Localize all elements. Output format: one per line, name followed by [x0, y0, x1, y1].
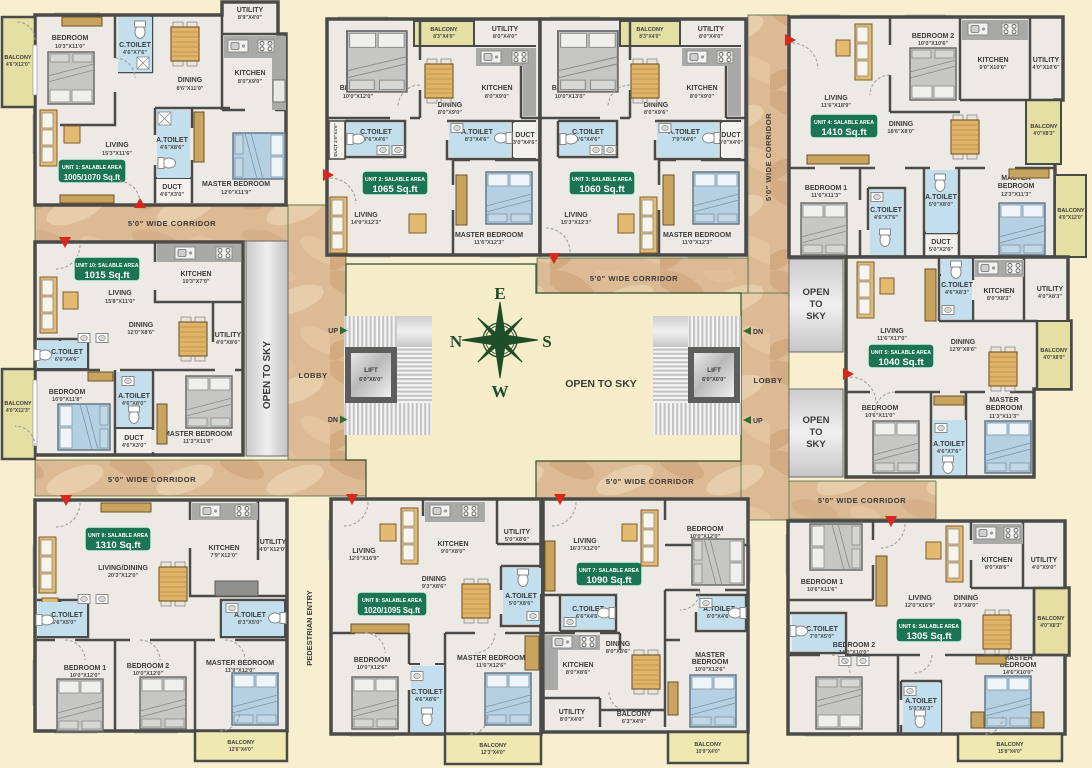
svg-text:DINING: DINING — [129, 322, 154, 329]
svg-text:12'3"X11'3": 12'3"X11'3" — [1001, 192, 1031, 198]
svg-text:DUCT: DUCT — [931, 239, 951, 246]
svg-text:A.TOILET: A.TOILET — [905, 698, 937, 705]
svg-text:LIVING: LIVING — [573, 538, 597, 545]
svg-text:8'3"X5'0": 8'3"X5'0" — [238, 620, 262, 626]
svg-text:4'6"X8'6": 4'6"X8'6" — [415, 697, 439, 703]
svg-text:UNIT 1: SALABLE AREA: UNIT 1: SALABLE AREA — [62, 165, 122, 171]
svg-text:12'3"X4'0": 12'3"X4'0" — [481, 750, 506, 756]
svg-text:4'0"X8'6": 4'0"X8'6" — [216, 340, 240, 346]
svg-text:5'0" WIDE CORRIDOR: 5'0" WIDE CORRIDOR — [818, 496, 906, 505]
svg-text:11'6"X11'3": 11'6"X11'3" — [811, 193, 841, 199]
svg-text:14'0"X10'0": 14'0"X10'0" — [839, 650, 870, 656]
svg-text:11'6"X18'9": 11'6"X18'9" — [821, 103, 851, 109]
svg-text:A.TOILET: A.TOILET — [118, 393, 150, 400]
svg-text:4'0"X12'3": 4'0"X12'3" — [6, 408, 31, 414]
svg-text:5'0" WIDE CORRIDOR: 5'0" WIDE CORRIDOR — [590, 274, 678, 283]
svg-text:MASTER BEDROOM: MASTER BEDROOM — [455, 232, 523, 239]
svg-text:4'0"X12'0": 4'0"X12'0" — [259, 547, 287, 553]
svg-text:UTILITY: UTILITY — [1037, 286, 1064, 293]
svg-text:A.TOILET: A.TOILET — [234, 612, 266, 619]
svg-text:BEDROOM: BEDROOM — [49, 389, 86, 396]
svg-text:4'0"X8'3": 4'0"X8'3" — [1040, 623, 1062, 629]
svg-text:A.TOILET: A.TOILET — [156, 137, 188, 144]
svg-text:BEDROOM: BEDROOM — [998, 183, 1035, 190]
svg-text:BALCONY: BALCONY — [430, 27, 458, 33]
svg-text:LIVING: LIVING — [108, 290, 132, 297]
svg-text:MASTER BEDROOM: MASTER BEDROOM — [206, 660, 274, 667]
svg-text:MASTER: MASTER — [695, 652, 725, 659]
svg-text:8'6"X11'0": 8'6"X11'0" — [177, 86, 204, 92]
svg-text:LIVING: LIVING — [824, 95, 848, 102]
svg-text:4'6"X7'6": 4'6"X7'6" — [123, 50, 147, 56]
svg-text:MASTER: MASTER — [989, 397, 1019, 404]
svg-text:N: N — [450, 332, 463, 351]
svg-text:UTILITY: UTILITY — [1031, 557, 1058, 564]
svg-text:4'6"X12'0": 4'6"X12'0" — [6, 62, 31, 68]
svg-text:C.TOILET: C.TOILET — [806, 626, 838, 633]
svg-text:6'6"X4'6": 6'6"X4'6" — [55, 357, 79, 363]
svg-text:12'0"X11'9": 12'0"X11'9" — [221, 190, 251, 196]
svg-text:1090 Sq.ft: 1090 Sq.ft — [586, 575, 632, 586]
svg-text:UNIT 3: SALABLE AREA: UNIT 3: SALABLE AREA — [572, 177, 632, 183]
svg-text:8'0"X9'0": 8'0"X9'0" — [238, 79, 262, 85]
svg-text:BALCONY: BALCONY — [996, 742, 1024, 748]
svg-text:4'6"X3'0": 4'6"X3'0" — [122, 443, 146, 449]
svg-text:UNIT 8: SALABLE AREA: UNIT 8: SALABLE AREA — [362, 598, 422, 604]
svg-text:LIVING: LIVING — [354, 212, 378, 219]
svg-text:8'0"X9'0": 8'0"X9'0" — [485, 94, 509, 100]
svg-text:DINING: DINING — [606, 641, 631, 648]
svg-text:1305 Sq.ft: 1305 Sq.ft — [906, 631, 952, 642]
svg-text:4'0"X8'3": 4'0"X8'3" — [1033, 131, 1055, 137]
svg-text:BEDROOM 1: BEDROOM 1 — [801, 579, 844, 586]
svg-text:10'0"X12'6": 10'0"X12'6" — [357, 665, 388, 671]
svg-text:OPEN TO SKY: OPEN TO SKY — [565, 378, 637, 390]
svg-text:5'0"X2'6": 5'0"X2'6" — [929, 247, 953, 253]
svg-text:C.TOILET: C.TOILET — [941, 282, 973, 289]
svg-text:12'6"X4'0": 12'6"X4'0" — [229, 747, 254, 753]
svg-text:UNIT 10: SALABLE AREA: UNIT 10: SALABLE AREA — [76, 263, 139, 269]
svg-text:10'0"X11'8": 10'0"X11'8" — [52, 397, 82, 403]
svg-text:UTILITY: UTILITY — [504, 529, 531, 536]
svg-text:6'0"X6'0": 6'0"X6'0" — [359, 377, 383, 383]
svg-text:BALCONY: BALCONY — [617, 711, 652, 718]
svg-text:9'0"X10'6": 9'0"X10'6" — [979, 65, 1007, 71]
svg-text:KITCHEN: KITCHEN — [437, 541, 468, 548]
svg-text:6'6"X5'0": 6'6"X5'0" — [52, 620, 76, 626]
svg-text:1040 Sq.ft: 1040 Sq.ft — [878, 357, 924, 368]
svg-text:UTILITY: UTILITY — [698, 26, 725, 33]
svg-text:4'0"X9'0": 4'0"X9'0" — [1032, 565, 1056, 571]
svg-text:9'3"X8'6": 9'3"X8'6" — [422, 584, 446, 590]
svg-text:5'0"X8'6": 5'0"X8'6" — [505, 537, 529, 543]
svg-text:14'6"X10'0": 14'6"X10'0" — [1003, 670, 1034, 676]
svg-text:10'6"X11'0": 10'6"X11'0" — [865, 413, 895, 419]
svg-text:10'3"X7'0": 10'3"X7'0" — [182, 279, 210, 285]
svg-text:4'6"X8'3": 4'6"X8'3" — [945, 290, 969, 296]
svg-text:10'0"X12'6": 10'0"X12'6" — [695, 667, 726, 673]
svg-text:UTILITY: UTILITY — [492, 26, 519, 33]
svg-text:C.TOILET: C.TOILET — [119, 42, 151, 49]
svg-text:1005/1070 Sq.ft: 1005/1070 Sq.ft — [64, 173, 121, 182]
svg-text:BALCONY: BALCONY — [694, 742, 722, 748]
svg-text:5'0" WIDE CORRIDOR: 5'0" WIDE CORRIDOR — [764, 113, 773, 201]
svg-text:3'0"X4'6": 3'0"X4'6" — [719, 140, 743, 146]
svg-text:4'0"X10'6": 4'0"X10'6" — [1032, 65, 1060, 71]
svg-text:DUCT: DUCT — [721, 132, 741, 139]
svg-text:11'6"X12'3": 11'6"X12'3" — [474, 240, 504, 246]
svg-text:C.TOILET: C.TOILET — [360, 129, 392, 136]
svg-text:KITCHEN: KITCHEN — [977, 57, 1008, 64]
svg-text:5'0"X8'6": 5'0"X8'6" — [509, 601, 533, 607]
svg-text:DINING: DINING — [954, 595, 979, 602]
svg-text:8'0"X9'0": 8'0"X9'0" — [690, 94, 714, 100]
svg-text:4'0"X8'0": 4'0"X8'0" — [1043, 355, 1065, 361]
svg-text:4'6"X7'6": 4'6"X7'6" — [937, 449, 961, 455]
svg-text:LIVING: LIVING — [352, 548, 376, 555]
svg-text:8'0"X4'0": 8'0"X4'0" — [560, 717, 584, 723]
svg-text:DINING: DINING — [422, 576, 447, 583]
svg-text:8'0"X4'0": 8'0"X4'0" — [493, 34, 517, 40]
svg-text:8'0"X4'0": 8'0"X4'0" — [699, 34, 723, 40]
svg-text:4'6"X3'0": 4'6"X3'0" — [160, 192, 184, 198]
svg-text:DUCT: DUCT — [515, 132, 535, 139]
svg-text:10'0"X12'0": 10'0"X12'0" — [70, 673, 101, 679]
svg-text:10'0"X13'0": 10'0"X13'0" — [555, 94, 586, 100]
svg-text:BEDROOM 2: BEDROOM 2 — [127, 663, 170, 670]
svg-text:BEDROOM: BEDROOM — [862, 405, 899, 412]
svg-text:C.TOILET: C.TOILET — [870, 207, 902, 214]
svg-text:12'9"X8'6": 12'9"X8'6" — [949, 347, 977, 353]
svg-text:A.TOILET: A.TOILET — [925, 194, 957, 201]
svg-text:MASTER BEDROOM: MASTER BEDROOM — [457, 655, 525, 662]
svg-text:5'0" WIDE CORRIDOR: 5'0" WIDE CORRIDOR — [606, 477, 694, 486]
svg-text:11'3"X11'3": 11'3"X11'3" — [989, 414, 1019, 420]
svg-text:LIVING: LIVING — [908, 595, 932, 602]
svg-text:3'0"X4'6": 3'0"X4'6" — [513, 140, 537, 146]
svg-text:8'0"X8'3": 8'0"X8'3" — [987, 296, 1011, 302]
svg-text:10'9"X4'0": 10'9"X4'0" — [696, 749, 721, 755]
svg-text:LIVING: LIVING — [880, 328, 904, 335]
svg-text:6'3"X4'0": 6'3"X4'0" — [622, 719, 646, 725]
svg-text:20'3"X12'0": 20'3"X12'0" — [108, 573, 139, 579]
svg-text:KITCHEN: KITCHEN — [562, 662, 593, 669]
svg-text:UNIT 4: SALABLE AREA: UNIT 4: SALABLE AREA — [814, 120, 874, 126]
svg-text:MASTER: MASTER — [1003, 655, 1033, 662]
svg-text:DUCT: DUCT — [124, 435, 144, 442]
svg-text:4'0"X12'0": 4'0"X12'0" — [1059, 215, 1084, 221]
svg-text:15'3"X12'3": 15'3"X12'3" — [561, 220, 592, 226]
svg-text:BALCONY: BALCONY — [1040, 348, 1068, 354]
svg-text:UP: UP — [328, 328, 338, 335]
svg-text:DN: DN — [328, 417, 338, 424]
svg-text:5'0" WIDE CORRIDOR: 5'0" WIDE CORRIDOR — [128, 219, 216, 228]
svg-text:LIFT: LIFT — [364, 367, 378, 374]
svg-text:10'0"X10'6": 10'0"X10'6" — [918, 41, 949, 47]
svg-text:UTILITY: UTILITY — [260, 539, 287, 546]
svg-text:BALCONY: BALCONY — [1057, 208, 1085, 214]
svg-text:LIVING: LIVING — [564, 212, 588, 219]
svg-text:11'6"X12'6": 11'6"X12'6" — [476, 663, 506, 669]
svg-text:LIVING/DINING: LIVING/DINING — [98, 565, 148, 572]
svg-text:BEDROOM 2: BEDROOM 2 — [833, 642, 876, 649]
svg-text:LOBBY: LOBBY — [753, 376, 782, 385]
svg-text:DUCT 2'0"X4'6": DUCT 2'0"X4'6" — [333, 123, 338, 156]
svg-text:UTILITY: UTILITY — [237, 7, 264, 14]
svg-text:KITCHEN: KITCHEN — [981, 557, 1012, 564]
svg-text:6'0"X4'6": 6'0"X4'6" — [707, 614, 731, 620]
svg-text:KITCHEN: KITCHEN — [481, 85, 512, 92]
svg-text:KITCHEN: KITCHEN — [983, 288, 1014, 295]
svg-text:8'3"X4'0": 8'3"X4'0" — [639, 34, 661, 40]
svg-text:8'0"X8'6": 8'0"X8'6" — [985, 565, 1009, 571]
svg-text:18'6"X8'0": 18'6"X8'0" — [887, 129, 915, 135]
svg-text:BEDROOM: BEDROOM — [52, 35, 89, 42]
svg-text:BEDROOM: BEDROOM — [354, 657, 391, 664]
svg-text:OPEN: OPEN — [803, 415, 830, 426]
svg-text:MASTER BEDROOM: MASTER BEDROOM — [164, 431, 232, 438]
svg-text:UNIT 9: SALABLE AREA: UNIT 9: SALABLE AREA — [88, 533, 148, 539]
svg-text:BALCONY: BALCONY — [4, 55, 32, 61]
svg-text:10'0"X12'0": 10'0"X12'0" — [343, 94, 374, 100]
svg-text:1060 Sq.ft: 1060 Sq.ft — [579, 184, 625, 195]
svg-text:UTILITY: UTILITY — [215, 332, 242, 339]
svg-text:11'0"X12'3": 11'0"X12'3" — [682, 240, 712, 246]
svg-text:12'0"X16'9": 12'0"X16'9" — [905, 603, 936, 609]
svg-text:14'9"X12'3": 14'9"X12'3" — [351, 220, 382, 226]
svg-text:BALCONY: BALCONY — [479, 743, 507, 749]
svg-text:KITCHEN: KITCHEN — [686, 85, 717, 92]
svg-text:15'3"X11'6": 15'3"X11'6" — [102, 151, 132, 157]
svg-text:A.TOILET: A.TOILET — [933, 441, 965, 448]
svg-text:1065 Sq.ft: 1065 Sq.ft — [372, 184, 418, 195]
svg-text:KITCHEN: KITCHEN — [208, 545, 239, 552]
svg-text:BALCONY: BALCONY — [1037, 616, 1065, 622]
svg-text:TO: TO — [809, 427, 822, 438]
svg-text:E: E — [494, 284, 505, 303]
svg-text:DINING: DINING — [951, 339, 976, 346]
svg-text:4'0"X8'3": 4'0"X8'3" — [1038, 294, 1062, 300]
svg-text:A.TOILET: A.TOILET — [668, 129, 700, 136]
svg-text:A.TOILET: A.TOILET — [461, 129, 493, 136]
svg-text:BEDROOM: BEDROOM — [986, 405, 1023, 412]
svg-text:SKY: SKY — [806, 311, 826, 322]
svg-text:DN: DN — [753, 329, 763, 336]
svg-text:BEDROOM 1: BEDROOM 1 — [805, 185, 848, 192]
svg-text:7'6"X4'6": 7'6"X4'6" — [364, 137, 388, 143]
svg-text:C.TOILET: C.TOILET — [572, 129, 604, 136]
svg-text:7'0"X5'0": 7'0"X5'0" — [810, 634, 834, 640]
svg-text:LOBBY: LOBBY — [298, 371, 327, 380]
svg-text:LIFT: LIFT — [707, 367, 721, 374]
svg-text:6'6"X4'6": 6'6"X4'6" — [576, 137, 600, 143]
svg-text:A.TOILET: A.TOILET — [505, 593, 537, 600]
svg-text:8'3"X8'0": 8'3"X8'0" — [954, 603, 978, 609]
svg-text:15'8"X4'0": 15'8"X4'0" — [998, 749, 1023, 755]
svg-text:OPEN: OPEN — [803, 287, 830, 298]
svg-text:12'0"X8'6": 12'0"X8'6" — [127, 330, 155, 336]
svg-text:9'0"X8'0": 9'0"X8'0" — [441, 549, 465, 555]
svg-text:BEDROOM: BEDROOM — [692, 659, 729, 666]
svg-text:8'0"X9'0": 8'0"X9'0" — [438, 110, 462, 116]
svg-text:8'0"X9'6": 8'0"X9'6" — [644, 110, 668, 116]
svg-text:MASTER BEDROOM: MASTER BEDROOM — [663, 232, 731, 239]
svg-text:KITCHEN: KITCHEN — [180, 271, 211, 278]
svg-text:5'0" WIDE CORRIDOR: 5'0" WIDE CORRIDOR — [108, 475, 196, 484]
svg-text:7'9"X12'0": 7'9"X12'0" — [210, 553, 238, 559]
svg-text:UNIT 7: SALABLE AREA: UNIT 7: SALABLE AREA — [579, 568, 639, 574]
svg-text:8'0"X8'6": 8'0"X8'6" — [606, 649, 630, 655]
svg-text:PEDESTRIAN ENTRY: PEDESTRIAN ENTRY — [305, 590, 314, 666]
svg-text:UNIT 5: SALABLE AREA: UNIT 5: SALABLE AREA — [871, 350, 931, 356]
svg-text:6'6"X4'6": 6'6"X4'6" — [576, 614, 600, 620]
svg-text:1310 Sq.ft: 1310 Sq.ft — [95, 540, 141, 551]
svg-text:8'9"X4'0": 8'9"X4'0" — [238, 15, 262, 21]
svg-text:7'9"X4'6": 7'9"X4'6" — [672, 137, 696, 143]
svg-text:DINING: DINING — [178, 77, 203, 84]
svg-text:16'3"X12'0": 16'3"X12'0" — [570, 546, 601, 552]
svg-text:UNIT 2: SALABLE AREA: UNIT 2: SALABLE AREA — [365, 177, 425, 183]
svg-text:UNIT 6: SALABLE AREA: UNIT 6: SALABLE AREA — [899, 624, 959, 630]
svg-text:TO: TO — [809, 299, 822, 310]
svg-text:4'6"X8'6": 4'6"X8'6" — [160, 145, 184, 151]
svg-text:12'0"X16'9": 12'0"X16'9" — [349, 556, 380, 562]
svg-text:4'6"X7'6": 4'6"X7'6" — [874, 215, 898, 221]
svg-text:15'8"X11'0": 15'8"X11'0" — [105, 299, 135, 305]
svg-text:DINING: DINING — [889, 121, 914, 128]
svg-text:1020/1095 Sq.ft: 1020/1095 Sq.ft — [364, 606, 421, 615]
svg-text:KITCHEN: KITCHEN — [234, 70, 265, 77]
svg-text:10'0"X12'0": 10'0"X12'0" — [133, 671, 164, 677]
svg-text:C.TOILET: C.TOILET — [51, 349, 83, 356]
svg-text:C.TOILET: C.TOILET — [411, 689, 443, 696]
svg-text:11'6"X17'0": 11'6"X17'0" — [877, 336, 907, 342]
svg-text:BEDROOM: BEDROOM — [687, 526, 724, 533]
svg-text:S: S — [542, 332, 551, 351]
svg-text:8'3"X4'0": 8'3"X4'0" — [433, 34, 455, 40]
svg-text:6'0"X6'0": 6'0"X6'0" — [702, 377, 726, 383]
svg-text:DUCT: DUCT — [162, 184, 182, 191]
svg-text:MASTER BEDROOM: MASTER BEDROOM — [202, 181, 270, 188]
svg-text:SKY: SKY — [806, 439, 826, 450]
svg-text:UTILITY: UTILITY — [1033, 57, 1060, 64]
svg-text:1410 Sq.ft: 1410 Sq.ft — [821, 127, 867, 138]
svg-text:11'3"X11'6": 11'3"X11'6" — [183, 439, 213, 445]
svg-text:8'3"X4'6": 8'3"X4'6" — [465, 137, 489, 143]
svg-text:UP: UP — [753, 418, 763, 425]
svg-text:1015 Sq.ft: 1015 Sq.ft — [84, 270, 130, 281]
svg-text:10'3"X11'0": 10'3"X11'0" — [55, 44, 85, 50]
svg-text:BALCONY: BALCONY — [4, 401, 32, 407]
svg-text:BALCONY: BALCONY — [636, 27, 664, 33]
svg-text:C.TOILET: C.TOILET — [51, 612, 83, 619]
svg-text:UTILITY: UTILITY — [559, 709, 586, 716]
svg-text:W: W — [492, 382, 509, 401]
svg-text:10'6"X11'6": 10'6"X11'6" — [807, 587, 837, 593]
svg-text:BEDROOM 1: BEDROOM 1 — [64, 665, 107, 672]
svg-text:OPEN TO SKY: OPEN TO SKY — [262, 341, 273, 409]
svg-text:BALCONY: BALCONY — [1030, 124, 1058, 130]
svg-text:8'0"X8'6": 8'0"X8'6" — [566, 670, 590, 676]
svg-text:LIVING: LIVING — [105, 142, 129, 149]
svg-text:BEDROOM 2: BEDROOM 2 — [912, 33, 955, 40]
svg-text:BALCONY: BALCONY — [227, 740, 255, 746]
svg-text:5'0"X8'0": 5'0"X8'0" — [929, 202, 953, 208]
